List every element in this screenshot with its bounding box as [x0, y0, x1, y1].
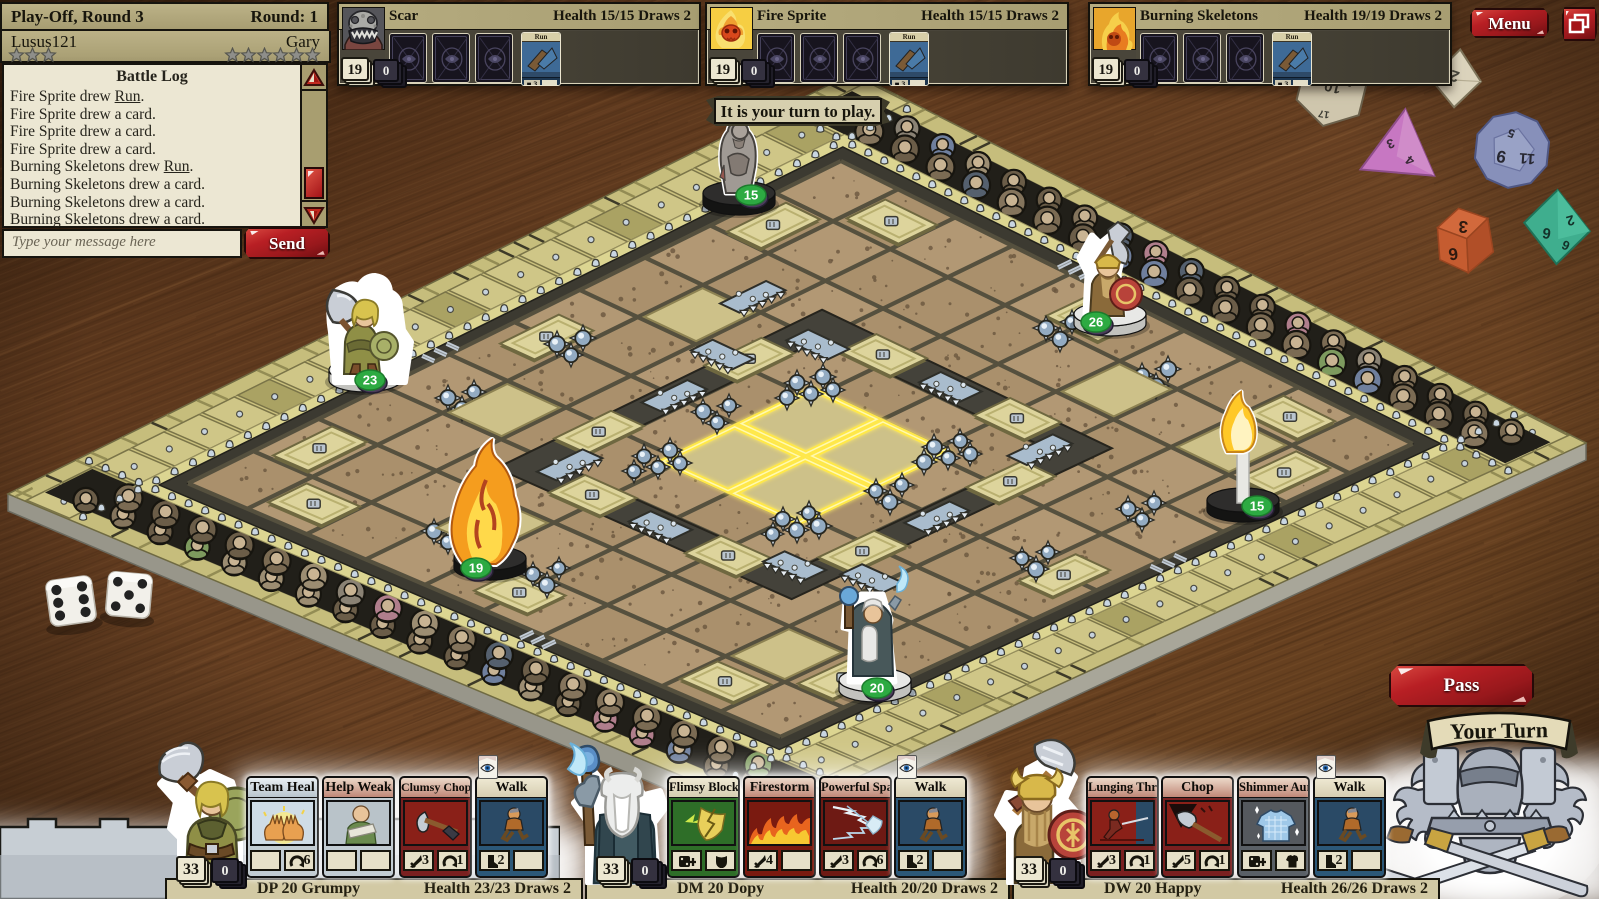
svg-text:Your Turn: Your Turn [1450, 717, 1548, 744]
svg-text:It is your turn to play.: It is your turn to play. [721, 102, 876, 121]
